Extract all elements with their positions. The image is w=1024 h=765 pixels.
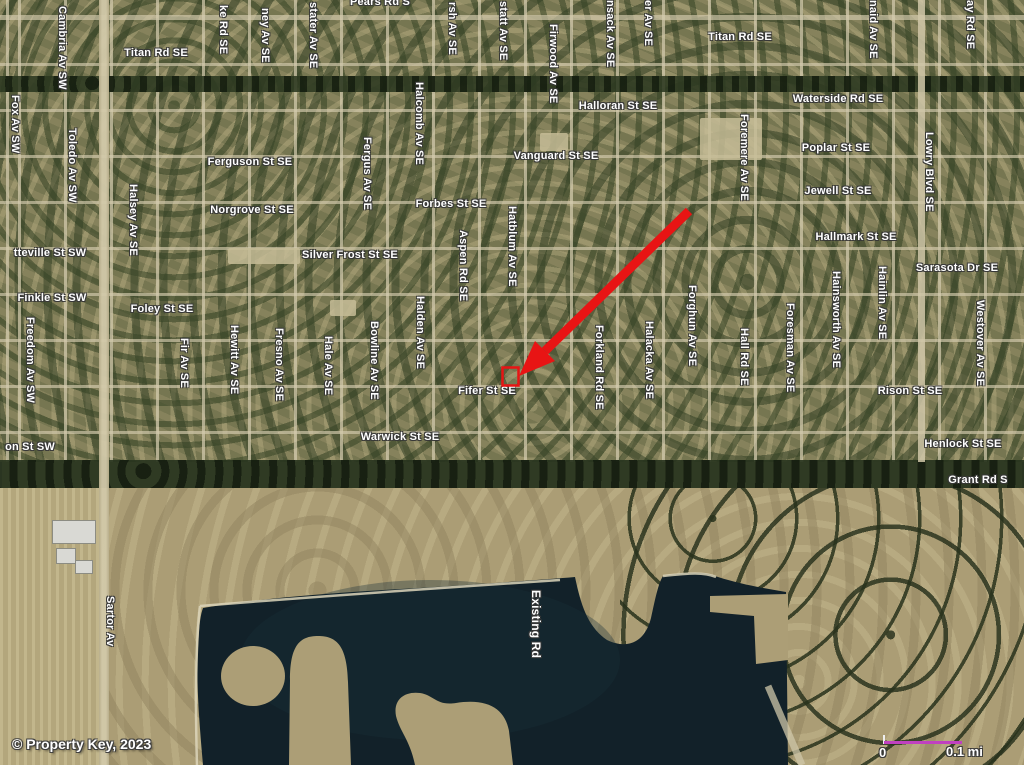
scale-start-label: 0 bbox=[879, 745, 886, 760]
scale-bar: 0 0.1 mi bbox=[868, 730, 1018, 762]
location-arrow bbox=[545, 211, 689, 351]
scale-end-label: 0.1 mi bbox=[946, 744, 983, 759]
annotation-layer bbox=[0, 0, 1024, 765]
attribution-watermark: © Property Key, 2023 bbox=[12, 736, 151, 752]
property-marker-rectangle bbox=[503, 368, 519, 386]
aerial-map: Pears Rd STitan Rd SETitan Rd SEWatersid… bbox=[0, 0, 1024, 765]
